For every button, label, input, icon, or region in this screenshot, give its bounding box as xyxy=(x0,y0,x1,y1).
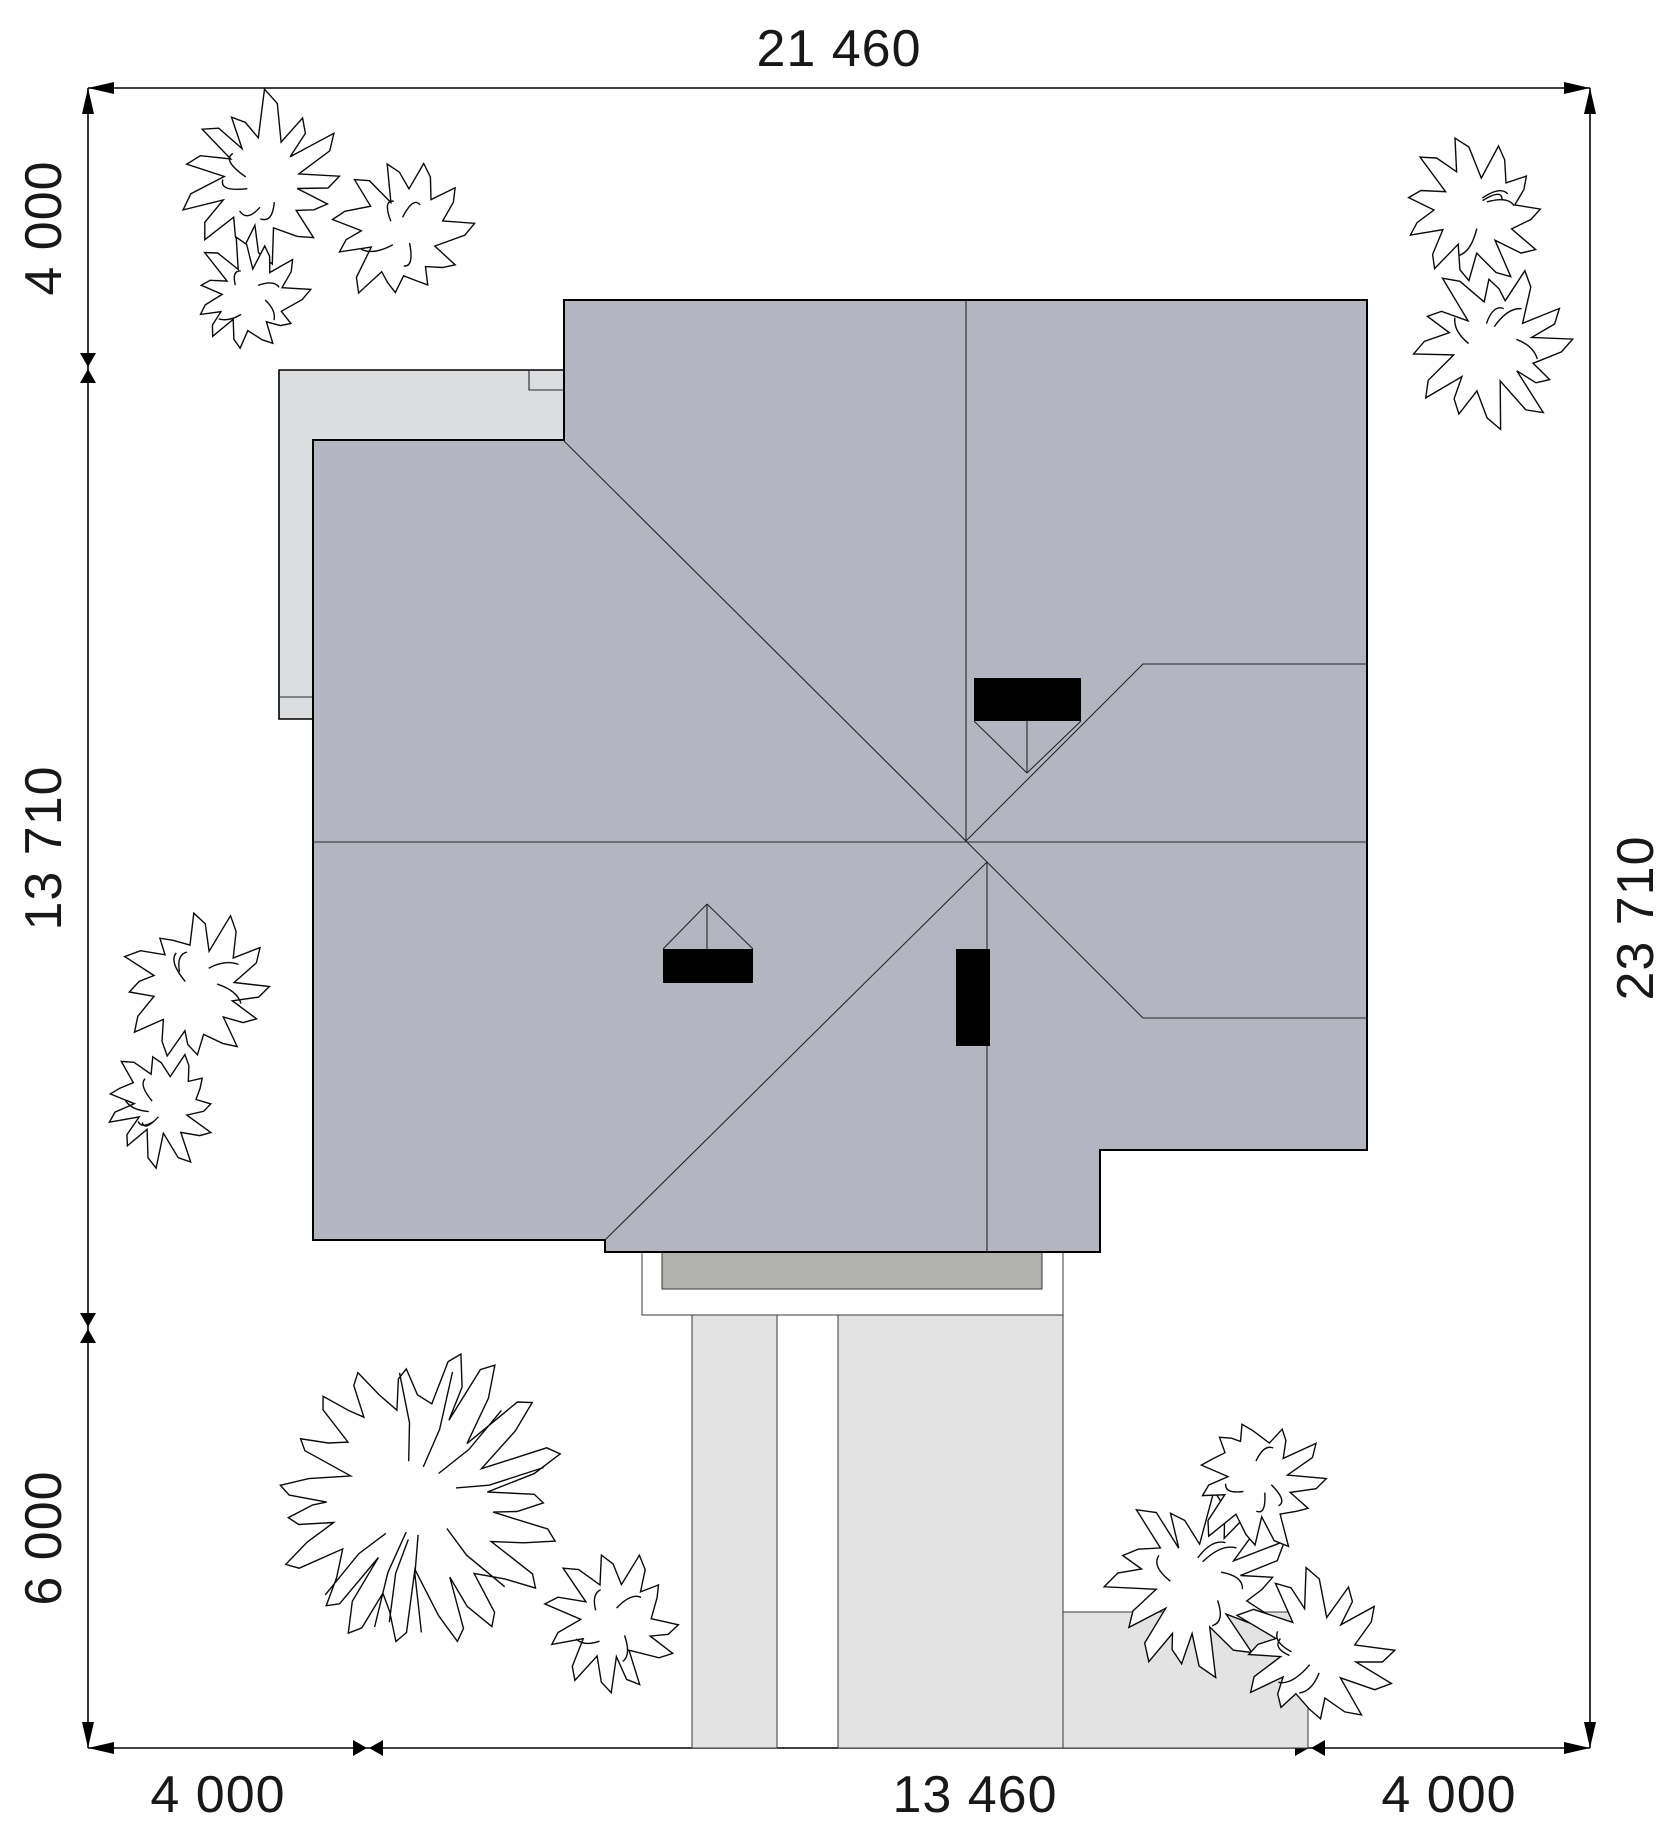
site-plan-drawing: 21 460 4 000 13 710 6 000 23 710 4 000 1… xyxy=(0,0,1679,1839)
dim-bottom-left-label: 4 000 xyxy=(150,1766,285,1824)
bush-icon xyxy=(1414,271,1573,430)
garage-slab xyxy=(662,1252,1042,1289)
bush-icon xyxy=(1409,138,1541,280)
dim-right-label: 23 710 xyxy=(1607,835,1665,1000)
house xyxy=(279,300,1367,1252)
bush-icon xyxy=(183,89,339,264)
paving xyxy=(642,1252,1308,1748)
site-plan-canvas: 21 460 4 000 13 710 6 000 23 710 4 000 1… xyxy=(0,0,1679,1839)
chimney-upper xyxy=(974,678,1081,721)
bush-icon xyxy=(125,913,270,1056)
chimney-middle xyxy=(956,949,990,1046)
main-roof xyxy=(313,300,1367,1252)
tree-icon xyxy=(280,1354,560,1641)
bush-icon xyxy=(545,1555,679,1693)
dim-left-bottom-label: 6 000 xyxy=(15,1470,73,1605)
dim-left-middle-label: 13 710 xyxy=(15,765,73,930)
bush-icon xyxy=(109,1055,210,1169)
dim-top-label: 21 460 xyxy=(756,20,921,78)
dim-bottom-right-label: 4 000 xyxy=(1381,1766,1516,1824)
walkway xyxy=(692,1315,777,1748)
bush-icon xyxy=(333,164,475,294)
dim-bottom-middle-label: 13 460 xyxy=(892,1766,1057,1824)
dim-left-top-label: 4 000 xyxy=(15,160,73,295)
bush-icon xyxy=(201,237,311,348)
chimney-left xyxy=(663,949,753,983)
driveway xyxy=(838,1315,1063,1748)
